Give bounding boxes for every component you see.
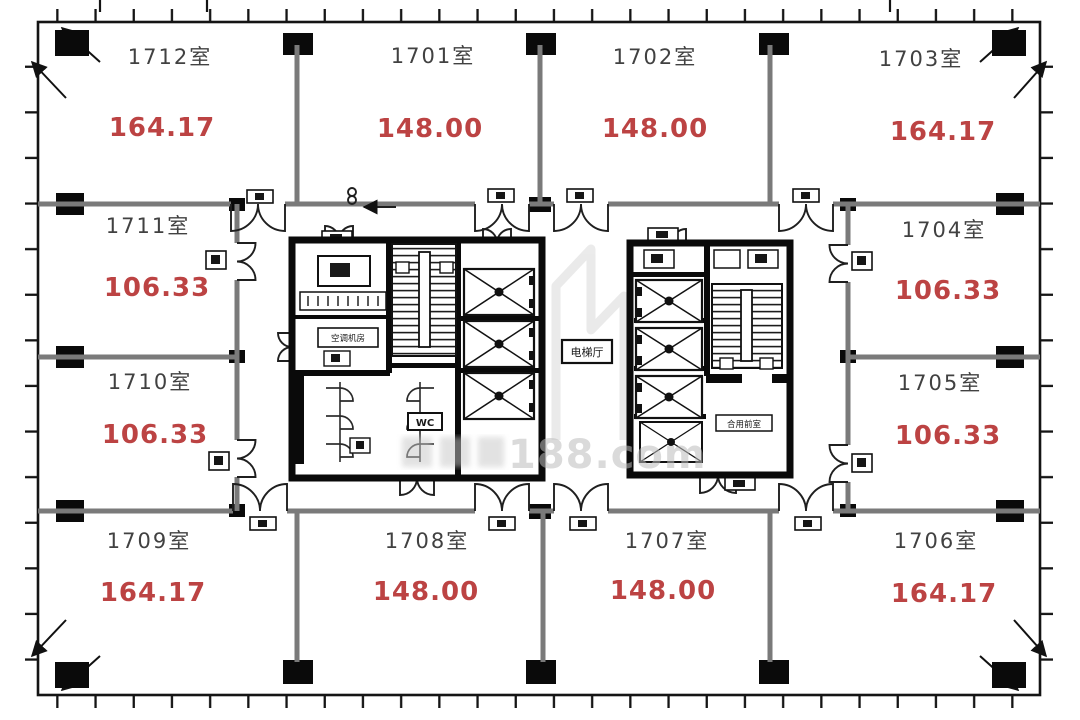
room-label-1704: 1704室 xyxy=(902,218,986,242)
room-area-1712: 164.17 xyxy=(109,113,215,143)
room-area-1701: 148.00 xyxy=(377,114,483,144)
wc-label: WC xyxy=(416,418,434,429)
floor-plan: 188.com 1712室 164.17 1701室 148.00 1702室 … xyxy=(0,0,1080,720)
room-area-1710: 106.33 xyxy=(102,420,208,450)
room-area-1702: 148.00 xyxy=(602,114,708,144)
room-label-1711: 1711室 xyxy=(106,214,190,238)
elevator-car xyxy=(636,376,702,418)
elevator-car xyxy=(464,269,535,315)
room-area-1707: 148.00 xyxy=(610,576,716,606)
room-area-1709: 164.17 xyxy=(100,578,206,608)
room-label-1709: 1709室 xyxy=(107,529,191,553)
room-label-1703: 1703室 xyxy=(879,47,963,71)
room-area-1708: 148.00 xyxy=(373,577,479,607)
room-area-1704: 106.33 xyxy=(895,276,1001,306)
room-label-1708: 1708室 xyxy=(385,529,469,553)
elevator-car xyxy=(464,373,535,419)
floor-plan-drawing: 188.com 1712室 164.17 1701室 148.00 1702室 … xyxy=(0,0,1080,720)
ac-room-label: 空调机房 xyxy=(331,333,365,344)
room-area-1703: 164.17 xyxy=(890,117,996,147)
elevator-car xyxy=(636,328,702,370)
room-label-1705: 1705室 xyxy=(898,371,982,395)
shared-vestibule-label: 合用前室 xyxy=(727,419,762,430)
elevator-car xyxy=(636,280,702,322)
elevator-hall-label: 电梯厅 xyxy=(571,346,604,359)
room-area-1711: 106.33 xyxy=(104,273,210,303)
room-label-1712: 1712室 xyxy=(128,45,212,69)
room-area-1705: 106.33 xyxy=(895,421,1001,451)
elevator-car xyxy=(464,321,535,367)
watermark-text: 188.com xyxy=(508,432,707,478)
room-label-1701: 1701室 xyxy=(391,44,475,68)
room-label-1702: 1702室 xyxy=(613,45,697,69)
room-label-1707: 1707室 xyxy=(625,529,709,553)
room-area-1706: 164.17 xyxy=(891,579,997,609)
room-label-1706: 1706室 xyxy=(894,529,978,553)
room-label-1710: 1710室 xyxy=(108,370,192,394)
